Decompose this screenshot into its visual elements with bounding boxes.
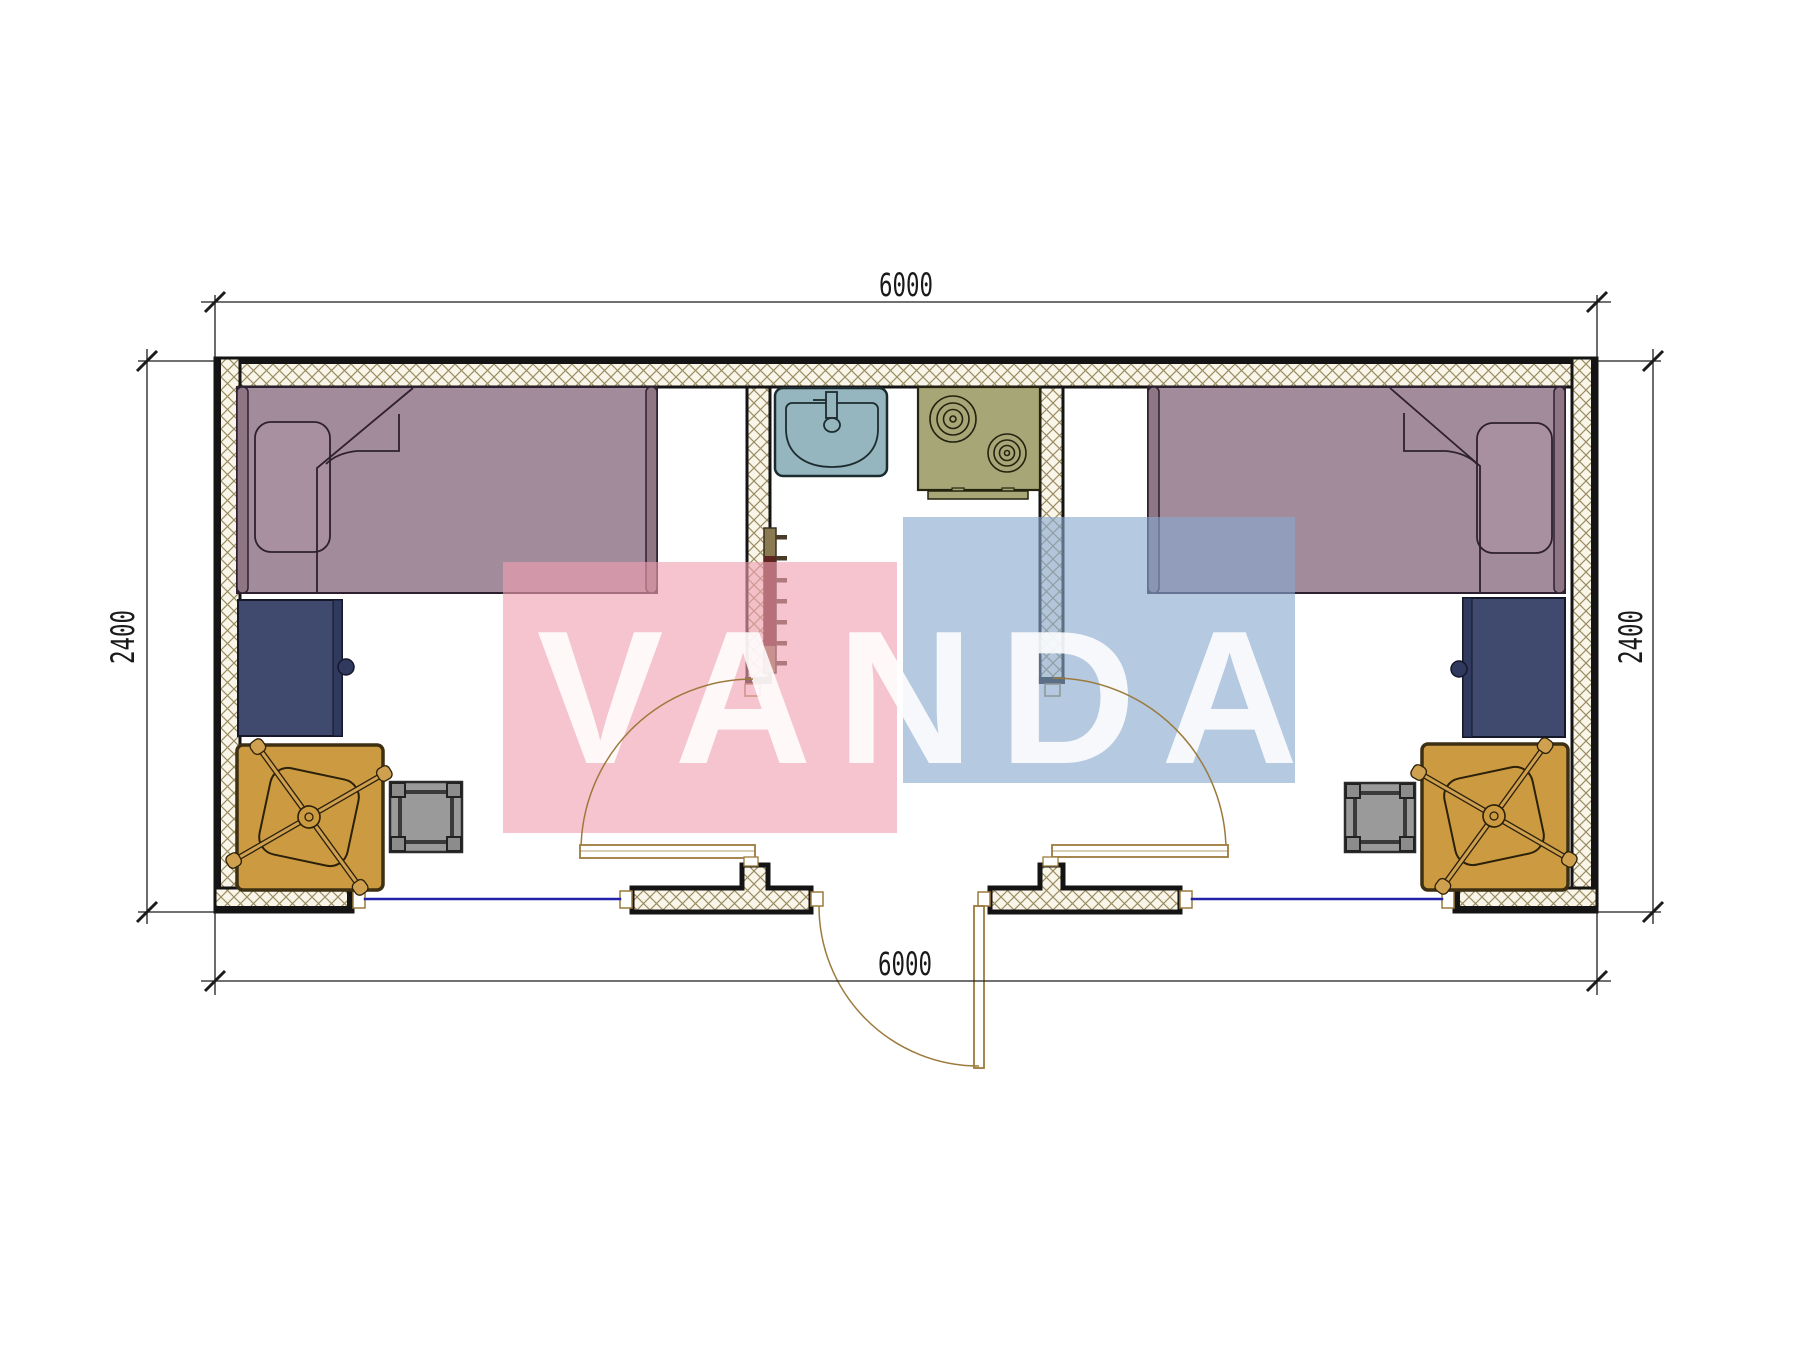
stove-handle-bar [928,491,1028,499]
door-hinge-jamb [744,857,758,866]
desk-knob [1451,661,1467,677]
stool-right [1345,783,1415,852]
door-jamb [811,892,823,906]
watermark: VANDA [503,517,1323,833]
door-hinge-jamb [1043,857,1058,866]
pillow [255,422,330,552]
stool-left [390,782,462,852]
stove [918,387,1040,499]
floor-plan-drawing: VANDA 6000 [0,0,1800,1350]
desk-right [1451,598,1565,737]
window-jamb [1180,891,1192,908]
desk-knob [338,659,354,675]
dimension-bottom-label: 6000 [878,945,932,983]
floor-plan-page: VANDA 6000 [0,0,1800,1350]
door-jamb [978,892,990,906]
pillow [1477,423,1552,553]
dimension-top-label: 6000 [879,266,933,304]
bed-headboard [237,387,248,593]
watermark-text: VANDA [537,592,1323,804]
dimension-left-label: 2400 [104,610,142,664]
bed-headboard [1554,387,1565,593]
window-jamb [620,891,632,908]
dimension-right-label: 2400 [1612,610,1650,664]
drain [824,418,840,432]
desk-left [238,600,354,736]
sink [775,388,887,476]
door-leaf [580,845,755,858]
faucet [826,392,837,418]
